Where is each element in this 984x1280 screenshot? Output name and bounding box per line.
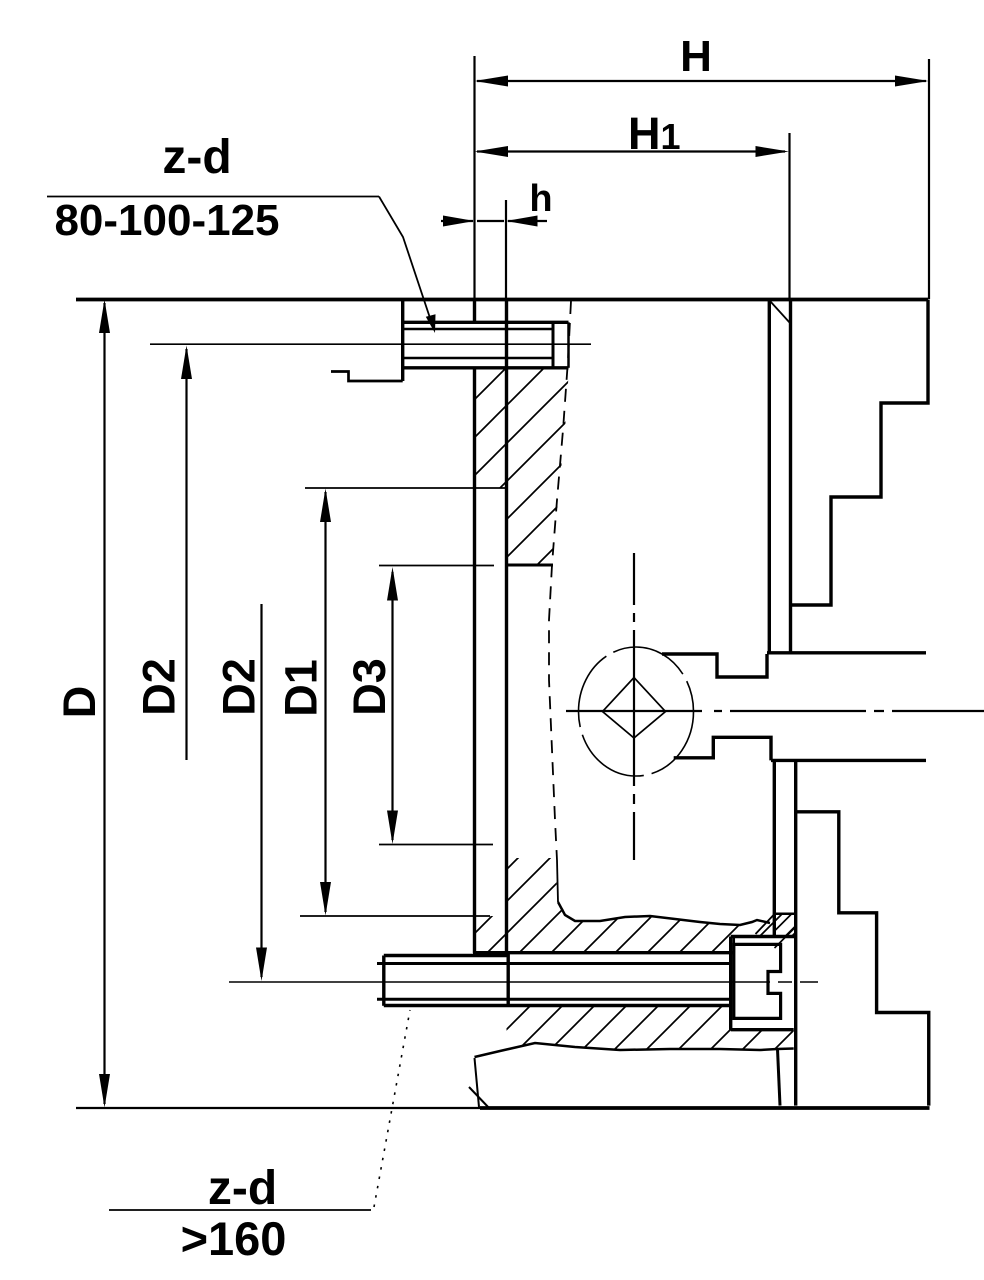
svg-text:D3: D3 <box>344 658 395 716</box>
svg-text:D1: D1 <box>276 659 327 717</box>
svg-text:>160: >160 <box>181 1212 287 1265</box>
svg-text:z-d: z-d <box>208 1162 277 1215</box>
svg-text:D2: D2 <box>134 658 185 716</box>
svg-text:D2: D2 <box>214 658 265 716</box>
svg-text:h: h <box>529 178 552 220</box>
svg-text:80-100-125: 80-100-125 <box>54 196 279 245</box>
svg-text:H: H <box>680 32 712 81</box>
svg-text:z-d: z-d <box>162 131 231 184</box>
svg-text:D: D <box>54 686 105 719</box>
svg-text:H1: H1 <box>628 108 681 159</box>
